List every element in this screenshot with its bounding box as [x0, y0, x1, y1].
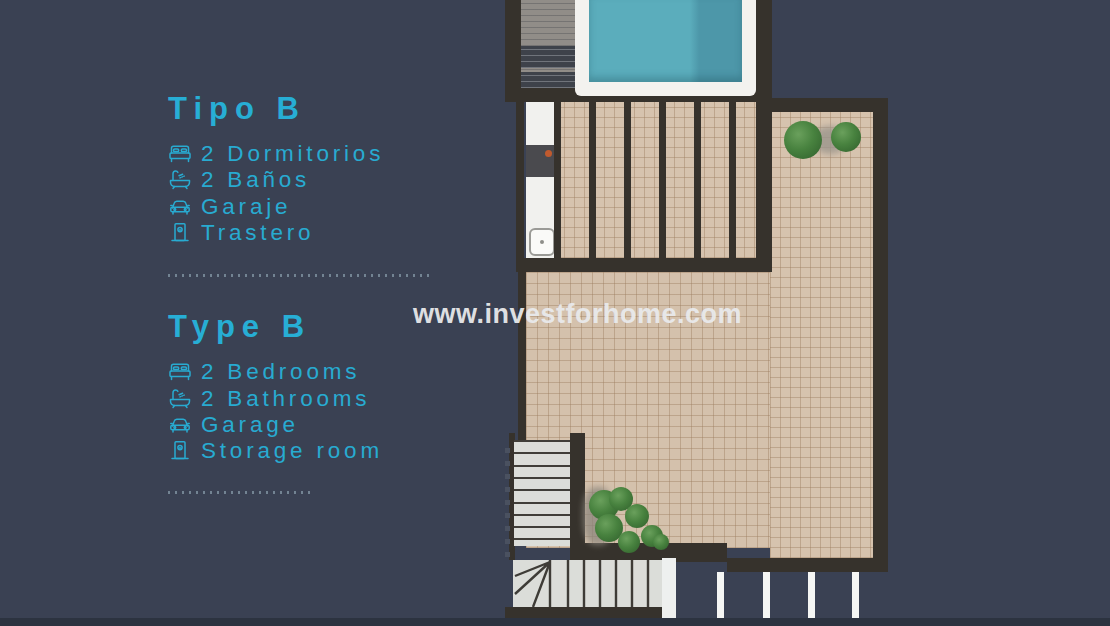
feature-label: 2 Bedrooms [201, 359, 360, 385]
bath-icon [168, 388, 192, 410]
section-spanish: Tipo B 2 Dormitorios 2 Baños Garaje [168, 92, 498, 277]
door-icon [168, 222, 192, 244]
feature-item: Garage [168, 412, 498, 438]
pergola-beam [589, 102, 596, 258]
wall-segment [516, 258, 772, 272]
pool-surround [575, 0, 756, 96]
car-icon [168, 414, 192, 436]
pergola-tiles [554, 102, 756, 258]
right-terrace-tiles [770, 112, 873, 558]
bath-icon [168, 169, 192, 191]
feature-item: Trastero [168, 220, 498, 246]
feature-label: 2 Dormitorios [201, 141, 384, 167]
section-english: Type B 2 Bedrooms 2 Bathrooms Garage [168, 310, 498, 494]
feature-item: 2 Dormitorios [168, 141, 498, 167]
pergola-beam [659, 102, 666, 258]
pergola-beam [554, 102, 561, 258]
staircase-upper-flight [514, 440, 570, 546]
feature-item: 2 Baños [168, 167, 498, 193]
wall-segment [727, 558, 888, 572]
pergola-beam [729, 102, 736, 258]
kitchen-appliance [526, 145, 556, 177]
stair-railing-ticks [505, 445, 510, 557]
outdoor-kitchen-counter [526, 102, 556, 258]
wood-deck [521, 0, 575, 88]
door-icon [168, 440, 192, 462]
wall-segment [756, 98, 888, 112]
dotted-divider [168, 491, 312, 494]
bed-icon [168, 143, 192, 165]
feature-item: 2 Bathrooms [168, 385, 498, 411]
floorplan-page: Tipo B 2 Dormitorios 2 Baños Garaje [0, 0, 1110, 626]
feature-item: 2 Bedrooms [168, 359, 498, 385]
feature-label: Trastero [201, 220, 314, 246]
feature-label: Garage [201, 412, 299, 438]
burner-dot [545, 150, 552, 157]
kitchen-sink [529, 228, 555, 256]
wall-segment [505, 0, 521, 102]
bush [653, 534, 669, 550]
pergola-beam [694, 102, 701, 258]
lower-landing-strip [662, 558, 676, 626]
dotted-divider [168, 274, 432, 277]
plant [831, 122, 861, 152]
feature-panel: Tipo B 2 Dormitorios 2 Baños Garaje [168, 92, 498, 494]
plant [784, 121, 822, 159]
feature-label: 2 Baños [201, 167, 310, 193]
wall-segment [873, 98, 888, 572]
deck-dark-band [521, 46, 575, 68]
wall-segment [516, 102, 524, 272]
feature-item: Garaje [168, 194, 498, 220]
deck-dark-band [521, 72, 575, 88]
bush [625, 504, 649, 528]
wall-segment [518, 272, 526, 440]
feature-label: 2 Bathrooms [201, 386, 370, 412]
swimming-pool [589, 0, 742, 82]
feature-item: Storage room [168, 438, 498, 464]
page-bottom-edge [0, 618, 1110, 626]
feature-label: Garaje [201, 194, 291, 220]
section-title-es: Tipo B [168, 92, 498, 126]
sink-drain [540, 240, 544, 244]
watermark-text: www.investforhome.com [413, 299, 742, 330]
feature-label: Storage room [201, 438, 383, 464]
bed-icon [168, 361, 192, 383]
staircase-lower-flight [513, 560, 662, 607]
car-icon [168, 196, 192, 218]
bush [618, 531, 640, 553]
stair-tread-lines [513, 560, 662, 607]
wall-segment [756, 0, 772, 272]
pergola-beam [624, 102, 631, 258]
